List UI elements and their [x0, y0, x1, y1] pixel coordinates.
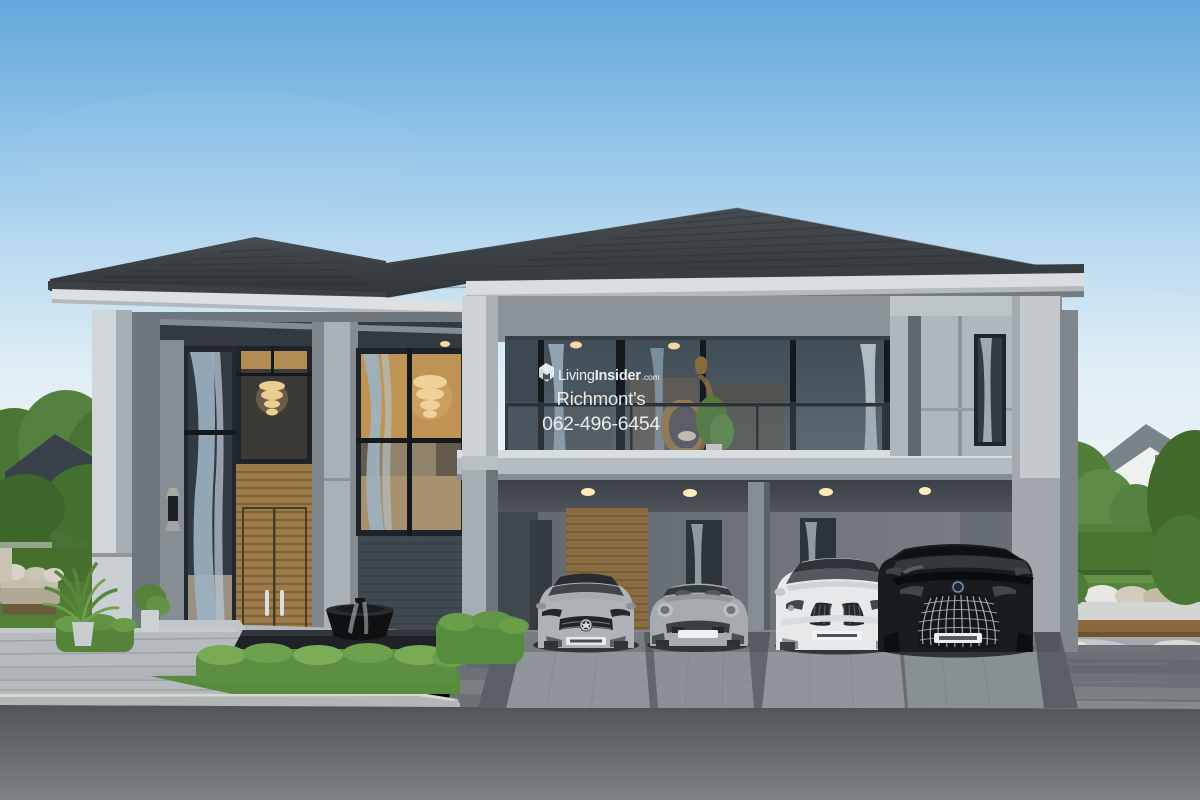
svg-text:Richmont's: Richmont's [557, 388, 646, 409]
svg-text:062-496-6454: 062-496-6454 [542, 413, 660, 435]
